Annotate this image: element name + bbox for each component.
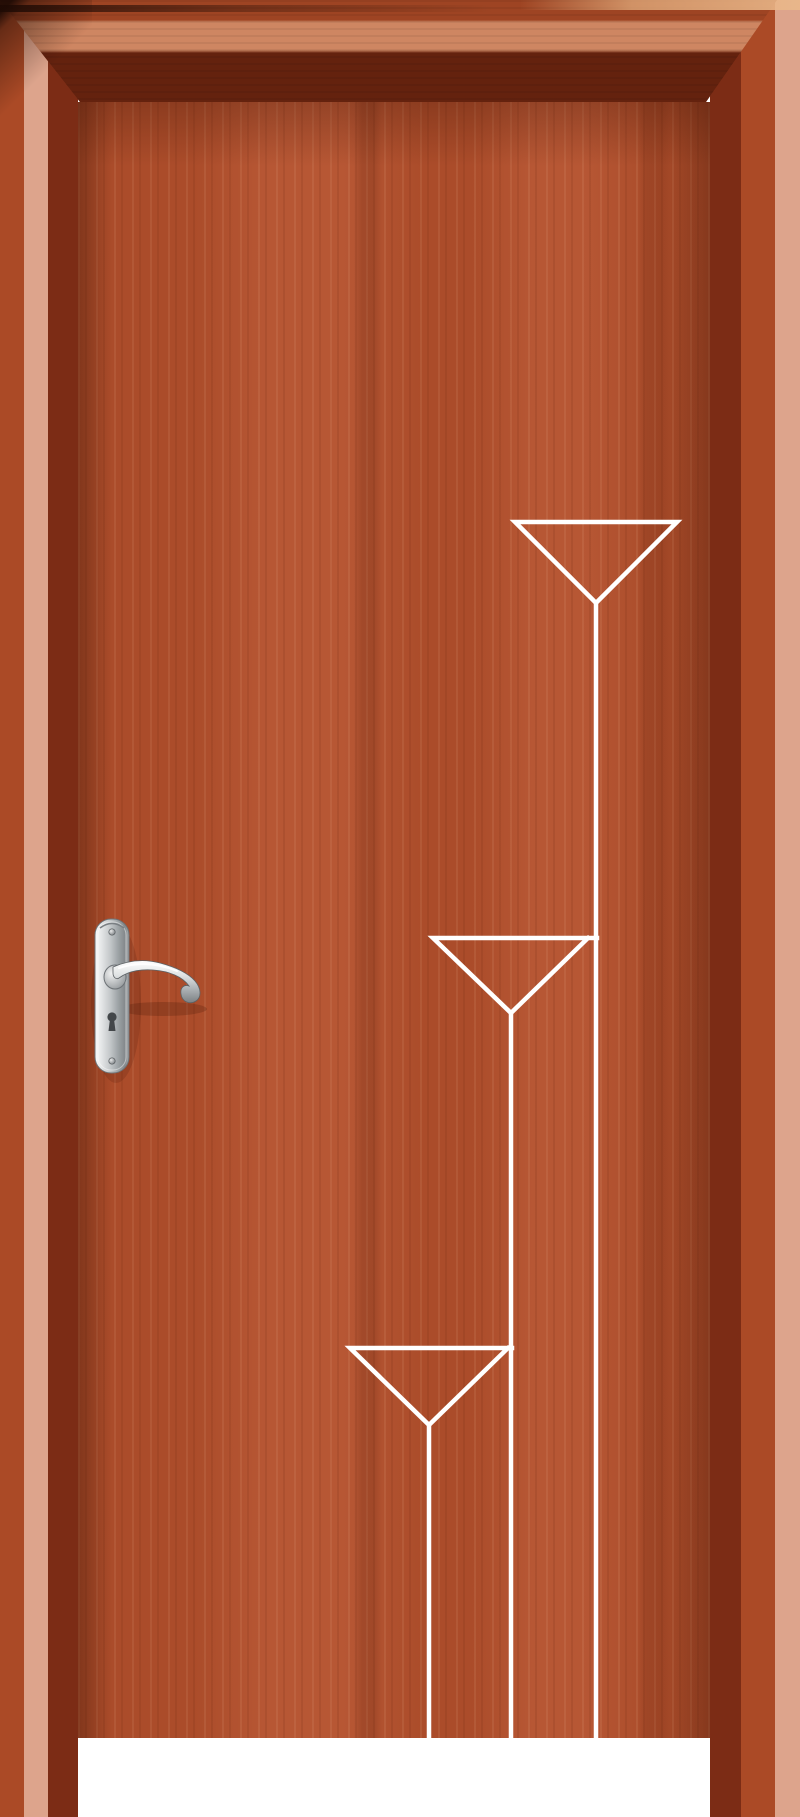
door-photo bbox=[0, 0, 800, 1817]
inlay-triangle-bottom bbox=[350, 1348, 512, 1425]
handle-backplate bbox=[95, 919, 129, 1073]
top-screw bbox=[109, 929, 115, 935]
lever-shadow bbox=[119, 1002, 207, 1016]
door-handle bbox=[85, 905, 215, 1085]
inlay-triangle-middle bbox=[433, 938, 597, 1013]
bottom-screw bbox=[109, 1058, 115, 1064]
inlay-triangle-top bbox=[515, 522, 677, 603]
